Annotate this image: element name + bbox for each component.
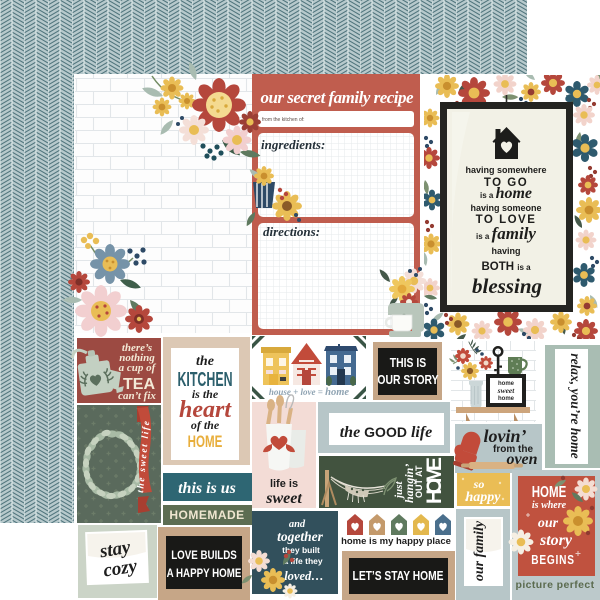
svg-text:relax, you’re home: relax, you’re home	[568, 353, 583, 458]
svg-text:THIS IS: THIS IS	[390, 356, 427, 370]
svg-text:life is: life is	[270, 478, 298, 490]
svg-text:BEGINS: BEGINS	[531, 553, 575, 567]
svg-text:a cup of: a cup of	[119, 362, 157, 374]
svg-text:BOTH is a: BOTH is a	[481, 261, 531, 273]
svg-text:LOVE BUILDS: LOVE BUILDS	[171, 549, 237, 562]
svg-text:HOME: HOME	[423, 457, 446, 504]
svg-text:home is my happy place: home is my happy place	[341, 536, 451, 547]
svg-text:can’t fix: can’t fix	[118, 390, 156, 402]
svg-text:sweet: sweet	[497, 386, 516, 395]
svg-text:blessing: blessing	[472, 274, 542, 298]
svg-text:the: the	[196, 354, 214, 369]
svg-text:of the: of the	[191, 418, 220, 432]
svg-text:together: together	[277, 529, 323, 544]
svg-text:having someone: having someone	[470, 203, 541, 213]
svg-text:having: having	[491, 246, 520, 256]
svg-text:is where: is where	[532, 500, 567, 511]
svg-text:HOME: HOME	[188, 433, 223, 452]
svg-text:home: home	[498, 396, 515, 402]
svg-text:happy: happy	[466, 490, 502, 505]
svg-text:oven: oven	[506, 451, 537, 468]
svg-text:from the kitchen of:: from the kitchen of:	[262, 117, 305, 123]
svg-text:having somewhere: having somewhere	[465, 165, 546, 175]
svg-text:the GOOD life: the GOOD life	[340, 424, 433, 441]
svg-text:HOMEMADE: HOMEMADE	[169, 508, 244, 522]
svg-text:loved…: loved…	[284, 569, 324, 583]
svg-text:lovin’: lovin’	[484, 426, 527, 446]
svg-text:OUR STORY: OUR STORY	[377, 373, 438, 387]
svg-text:so: so	[473, 477, 485, 491]
svg-text:picture perfect: picture perfect	[516, 579, 595, 591]
svg-text:LET’S STAY HOME: LET’S STAY HOME	[353, 570, 444, 583]
svg-text:directions:: directions:	[263, 224, 320, 239]
svg-text:ingredients:: ingredients:	[261, 137, 325, 152]
svg-text:A HAPPY HOME: A HAPPY HOME	[167, 567, 242, 580]
svg-text:our secret family recipe: our secret family recipe	[261, 88, 414, 107]
svg-text:sweet: sweet	[265, 490, 302, 507]
svg-text:story: story	[539, 532, 573, 549]
svg-text:our family: our family	[472, 520, 487, 581]
svg-text:our: our	[538, 516, 559, 531]
svg-text:this is us: this is us	[178, 480, 236, 497]
